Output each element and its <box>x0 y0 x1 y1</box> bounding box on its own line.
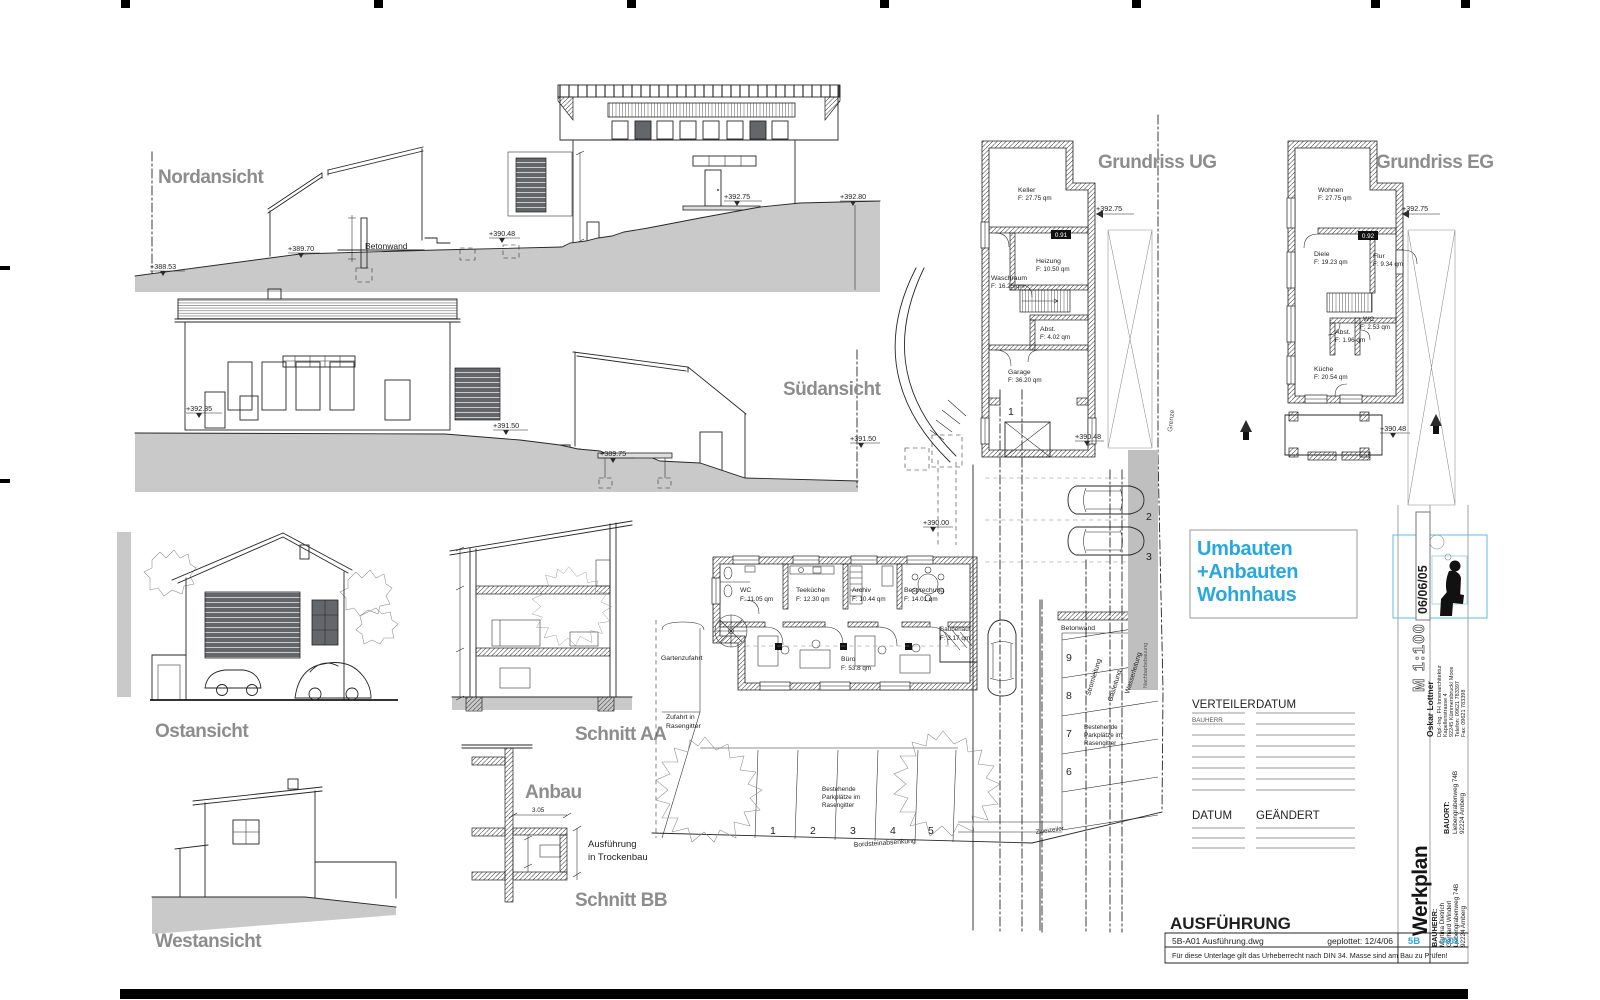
room-area: F: 19.23 qm <box>1314 259 1348 266</box>
room-name: WC <box>740 587 751 594</box>
stall-5: 5 <box>928 825 934 837</box>
view-suedansicht: +392.35 +391.50 +389.75 +391.50 Südansic… <box>135 289 882 492</box>
datum2-header: DATUM <box>1192 810 1232 822</box>
sheet-code-left: 5B <box>1408 936 1420 947</box>
parkplaetze-label2: Parkplätze im <box>822 794 860 801</box>
svg-text:+390.48: +390.48 <box>1075 432 1101 441</box>
geaendert-header: GEÄNDERT <box>1256 810 1320 822</box>
bordstein-label: Bordsteinabsenkung <box>854 838 917 849</box>
level-mark: +391.50 <box>850 434 876 443</box>
verteiler-header: VERTEILER <box>1192 699 1256 711</box>
windows <box>205 362 410 428</box>
buero-room-labels: WC F: 11.05 qm Teeküche F: 12.30 qm Arch… <box>740 587 971 672</box>
datum-header: DATUM <box>1256 699 1296 711</box>
room-name: Abst. <box>1335 329 1351 336</box>
zufahrt-label1: Zufahrt in <box>666 714 695 721</box>
eg-context-x <box>1408 230 1455 505</box>
room-area: F: 10.44 qm <box>852 596 886 603</box>
room-name: Keller <box>1018 187 1036 194</box>
view-anbau-schnitt-bb: 3.05 Ausführung in Trockenbau Anbau Schn… <box>462 745 667 911</box>
view-label-ostansicht: Ostansicht <box>155 721 249 742</box>
registration-marks <box>0 0 1470 999</box>
level-mark: +392.75 <box>724 192 750 201</box>
room-area: F: 20.54 qm <box>1314 374 1348 381</box>
outdoor-stair <box>930 400 966 440</box>
parkplaetze-label1b: Bestehende <box>1084 724 1118 731</box>
betonwand-label: Betonwand <box>365 241 408 251</box>
bauort-label: BAUORT: <box>1442 802 1451 834</box>
room-area: F: 1.96 qm <box>1335 337 1365 344</box>
view-label-anbau: Anbau <box>525 782 582 803</box>
stall-7: 7 <box>1066 728 1072 740</box>
room-name: Archiv <box>852 587 871 594</box>
date-stamp: 06/06/05 <box>1416 565 1430 614</box>
view-label-suedansicht: Südansicht <box>783 379 882 400</box>
sheet-bottom-bar <box>120 989 1468 999</box>
room-name: Garage <box>1008 369 1031 376</box>
room-name: Waschraum <box>991 275 1027 282</box>
terrain <box>135 433 858 492</box>
person-silhouette <box>1440 561 1464 617</box>
werkplan-drawing: +388.53 +389.70 +390.48 +392.75 +392.80 … <box>0 0 1600 1000</box>
zufahrt-label2: Rasengitter <box>666 723 701 730</box>
level-mark: +390.48 <box>489 229 515 238</box>
room-area: F: 53.8 qm <box>841 665 871 672</box>
ug-context-x <box>1108 230 1152 448</box>
terrain <box>135 201 880 292</box>
sheet-code-right: -A01 <box>1439 936 1460 947</box>
view-westansicht: Westansicht <box>152 779 396 952</box>
view-ostansicht: Ostansicht <box>144 533 398 742</box>
bauherr-city: 92224 Amberg <box>1460 906 1467 947</box>
grenze-line <box>1158 115 1163 812</box>
project-line2: +Anbauten <box>1197 561 1298 583</box>
level-mark: +392.35 <box>186 404 212 413</box>
window-row <box>612 121 788 139</box>
room-area: F: 36.20 qm <box>1008 377 1042 384</box>
room-name: Heizung <box>1036 258 1061 265</box>
phase-label: AUSFÜHRUNG <box>1170 914 1291 933</box>
room-name: Abst. <box>1040 326 1056 333</box>
verteiler-table: VERTEILER DATUM BAUHERR DATUM GEÄNDERT <box>1192 699 1355 848</box>
view-label-nordansicht: Nordansicht <box>158 167 265 188</box>
eg-terrace <box>1285 412 1382 460</box>
stall-2: 2 <box>810 825 816 837</box>
badge-value: 0.91 <box>1055 232 1068 239</box>
disclaimer: Für diese Unterlage gilt das Urheberrech… <box>1172 951 1448 960</box>
doc-type-label: Werkplan <box>1409 846 1432 936</box>
grundriss-eg: 0.92 Wohnen F: 27.75 qm Diele F: 19.23 q… <box>1240 141 1494 505</box>
stromleitung-label: Stromleitung <box>1085 658 1103 697</box>
parkplaetze-label1: Bestehende <box>822 786 856 793</box>
ost-house <box>150 533 398 700</box>
eg-level-mark: +392.75 <box>1402 204 1440 218</box>
plan-label-ug: Grundriss UG <box>1098 152 1217 173</box>
stall-6: 6 <box>1066 766 1072 778</box>
view-schnitt-aa: Schnitt AA <box>450 521 667 745</box>
room-name: Diele <box>1314 251 1330 258</box>
room-name: Besprechung <box>904 587 944 594</box>
parkplaetze-label2b: Parkplätze im <box>1084 732 1122 739</box>
title-block: Umbauten +Anbauten Wohnhaus 06/06/05 M 1… <box>1165 505 1487 963</box>
room-name: WC <box>1363 316 1374 323</box>
architect-block: Oskar Lottner Dipl.-Ing. FH Innenarchite… <box>1425 665 1467 737</box>
cars-plan <box>988 486 1144 696</box>
stall-number: 1 <box>1008 406 1014 418</box>
room-area: F: 14.01 qm <box>904 596 938 603</box>
room-area: F: 11.05 qm <box>740 596 773 603</box>
room-name: Flur <box>1373 253 1385 260</box>
stall-4: 4 <box>890 825 896 837</box>
bauort-street: Liebengrabenweg 74B <box>1452 771 1459 834</box>
room-area: F: 3.17 qm <box>940 635 970 642</box>
stall-3: 3 <box>850 825 856 837</box>
bauort-city: 92224 Amberg <box>1459 793 1466 834</box>
drawing-sheet: +388.53 +389.70 +390.48 +392.75 +392.80 … <box>0 0 1600 1000</box>
plot-date: geplottet: 12/4/06 <box>1327 936 1393 946</box>
dim-value: 3.05 <box>532 807 545 814</box>
stall-8: 8 <box>1066 690 1072 702</box>
site-lines <box>652 390 1162 932</box>
level-mark: +388.53 <box>150 262 176 271</box>
eg-partitions <box>1318 228 1396 355</box>
dashed-structures <box>905 435 962 470</box>
eg-outer-walls <box>1288 141 1403 403</box>
room-name: Wohnen <box>1318 187 1343 194</box>
level-mark: +389.70 <box>288 244 314 253</box>
cars-elevation <box>205 663 371 701</box>
room-area: F: 4.02 qm <box>1040 334 1070 341</box>
stamp-box <box>1393 535 1487 618</box>
buero-columns <box>775 643 912 650</box>
note-line1: Ausführung <box>588 839 637 850</box>
room-name: Küche <box>1314 366 1333 373</box>
room-area: F: 9.34 qm <box>1373 261 1403 268</box>
stall-car-2: 2 <box>1146 511 1152 523</box>
stall-car-3: 3 <box>1146 551 1152 563</box>
room-area: F: 27.75 qm <box>1018 195 1052 202</box>
room-name: Büro <box>841 656 856 663</box>
eg-390-mark: +390.48 <box>1380 424 1410 438</box>
view-label-schnitt-aa: Schnitt AA <box>575 724 667 745</box>
room-area: F: 16.25 qm <box>991 283 1025 290</box>
gartenzufahrt-label: Gartenzufahrt <box>661 655 703 662</box>
ug-windows <box>981 222 1096 444</box>
ug-level-mark: +392.75 <box>1096 204 1134 218</box>
svg-text:+392.75: +392.75 <box>1096 204 1122 213</box>
room-area: F: 2.53 qm <box>1360 324 1390 331</box>
architect-fax: Fax: 09621 783398 <box>1461 690 1467 737</box>
view-label-schnitt-bb: Schnitt BB <box>575 890 667 911</box>
level-mark: +391.50 <box>493 421 519 430</box>
svg-text:+392.75: +392.75 <box>1402 204 1428 213</box>
nachbar-label: Nachbarbebauung <box>1143 643 1149 688</box>
architect-name: Oskar Lottner <box>1425 681 1435 737</box>
file-name: 5B-A01 Ausführung.dwg <box>1172 936 1264 946</box>
level-mark: +389.75 <box>600 449 626 458</box>
room-area: F: 12.30 qm <box>796 596 830 603</box>
svg-text:+390.48: +390.48 <box>1380 424 1406 433</box>
view-label-westansicht: Westansicht <box>155 931 262 952</box>
grenze-label: Grenze <box>1167 409 1176 432</box>
room-area: F: 27.75 qm <box>1318 195 1352 202</box>
level-mark: +392.80 <box>840 192 866 201</box>
bauort-block: BAUORT: Liebengrabenweg 74B 92224 Amberg <box>1442 771 1466 834</box>
room-area: F: 10.50 qm <box>1036 266 1070 273</box>
parkplaetze-label3b: Rasengitter <box>1084 740 1116 747</box>
note-line2: in Trockenbau <box>588 852 648 863</box>
eg-stair <box>1327 293 1372 312</box>
view-nordansicht: +388.53 +389.70 +390.48 +392.75 +392.80 … <box>135 85 880 292</box>
badge-value: 0.92 <box>1362 233 1375 240</box>
room-name: Teeküche <box>796 587 825 594</box>
section-arrows <box>1240 414 1442 440</box>
plan-label-eg: Grundriss EG <box>1376 152 1494 173</box>
grundriss-ug: 0.91 Keller F: 27.75 qm Heizung F: 10.50… <box>895 115 1216 812</box>
project-line1: Umbauten <box>1197 538 1292 560</box>
curved-wall <box>895 268 956 462</box>
spiral-stair <box>715 615 747 647</box>
ug-390-marks: +390.00 +390.48 <box>923 432 1104 532</box>
svg-text:+390.00: +390.00 <box>923 518 949 527</box>
bauherr-label: BAUHERR: <box>1430 909 1439 947</box>
room-name: Sauberlauf <box>940 626 971 633</box>
project-line3: Wohnhaus <box>1197 584 1297 606</box>
verteiler-row-bauherr: BAUHERR <box>1192 717 1223 724</box>
parkplaetze-label3: Rasengitter <box>822 802 854 809</box>
stall-1: 1 <box>770 825 776 837</box>
betonwand-site-label: Betonwand <box>1061 625 1095 632</box>
stall-9: 9 <box>1066 652 1072 664</box>
